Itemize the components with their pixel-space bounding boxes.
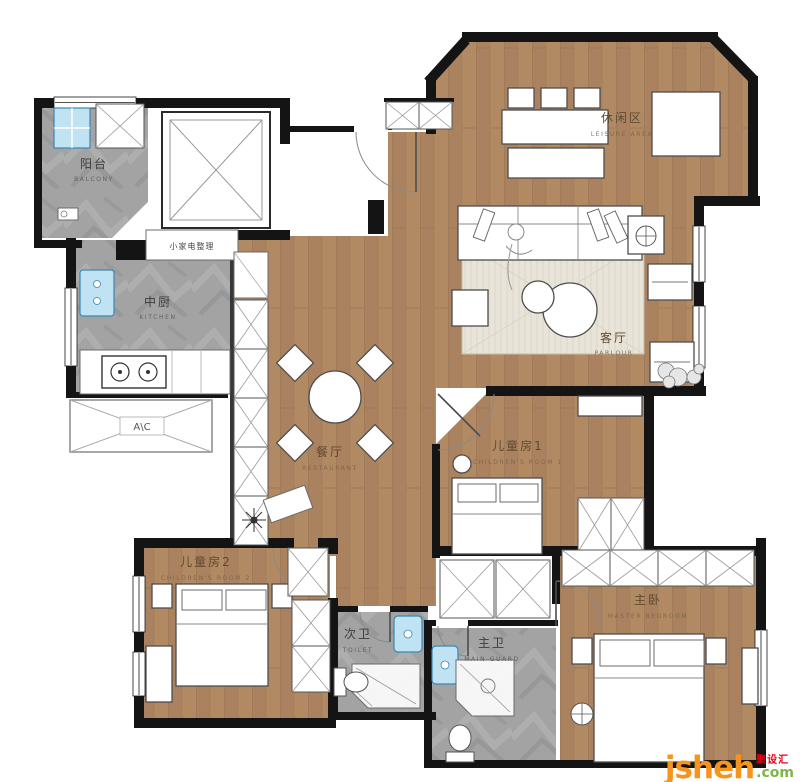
ceiling-fan-icon [571,703,593,725]
children2-label-zh: 儿童房2 [180,554,232,569]
ac-platform: A\C [70,400,212,452]
children2-label-en: CHILDREN'S ROOM 2 [161,575,251,582]
appliance-cabinet-label: 小家电整理 [170,241,215,251]
leisure-chair [508,88,534,108]
balcony-label-en: BALCONY [74,176,114,183]
leisure-chair [541,88,567,108]
balcony-label-zh: 阳台 [80,156,108,171]
leisure-table [502,110,608,144]
toilet-label-zh: 次卫 [344,627,372,641]
logo-tld-text: .com [756,766,794,780]
toilet-label-en: TOILET [342,647,374,654]
dining-table [309,371,361,423]
child2-nightstand [152,584,172,608]
walk-in-closet [440,560,550,618]
kitchen-label-zh: 中厨 [144,294,172,309]
dining-cabinet-column [234,252,268,545]
children1-label-zh: 儿童房1 [492,438,544,453]
entry-hall-floor [388,132,436,236]
master-nightstand [572,638,592,664]
floor-lamp [636,226,656,246]
leisure-label-en: LEISURE AREA [591,131,653,138]
floorplan-image: A\C 阳台 BALCONY 小家电整理 中厨 KITCHEN [0,0,800,782]
logo-right-stack: 聚设汇 .com [756,756,794,780]
leisure-bench [508,148,604,178]
elevator-shaft [162,112,270,228]
floorplan-svg: A\C 阳台 BALCONY 小家电整理 中厨 KITCHEN [0,0,800,782]
kitchen-sink [80,270,114,316]
dining-label-zh: 餐厅 [316,444,344,459]
kitchen-label-en: KITCHEN [139,314,176,321]
master-label-zh: 主卧 [634,593,662,607]
parlour-label-zh: 客厅 [600,330,628,345]
parlour-label-en: PARLOUR [594,350,633,357]
ac-label: A\C [133,422,150,433]
dining-label-en: RESTAURANT [302,465,358,472]
master-bath-label-en: MAIN GUARD [464,656,519,663]
master-nightstand [706,638,726,664]
master-label-en: MASTER BEDROOM [608,613,688,620]
child2-desk [146,646,172,702]
coffee-table-small [522,281,554,313]
side-table-left [452,290,488,326]
master-bath-label-zh: 主卫 [478,636,506,650]
leisure-chair [574,88,600,108]
leisure-mat [652,92,720,156]
leisure-label-zh: 休闲区 [601,111,643,125]
bottom-hall-floor [336,548,436,606]
child1-nightstand [453,455,471,473]
jsheh-logo: jsheh 聚设汇 .com [665,756,794,780]
children1-label-en: CHILDREN'S ROOM 1 [473,459,563,466]
child1-tv-cabinet [578,396,642,416]
logo-brand-text: jsheh [665,756,754,780]
master-bench [742,648,758,704]
